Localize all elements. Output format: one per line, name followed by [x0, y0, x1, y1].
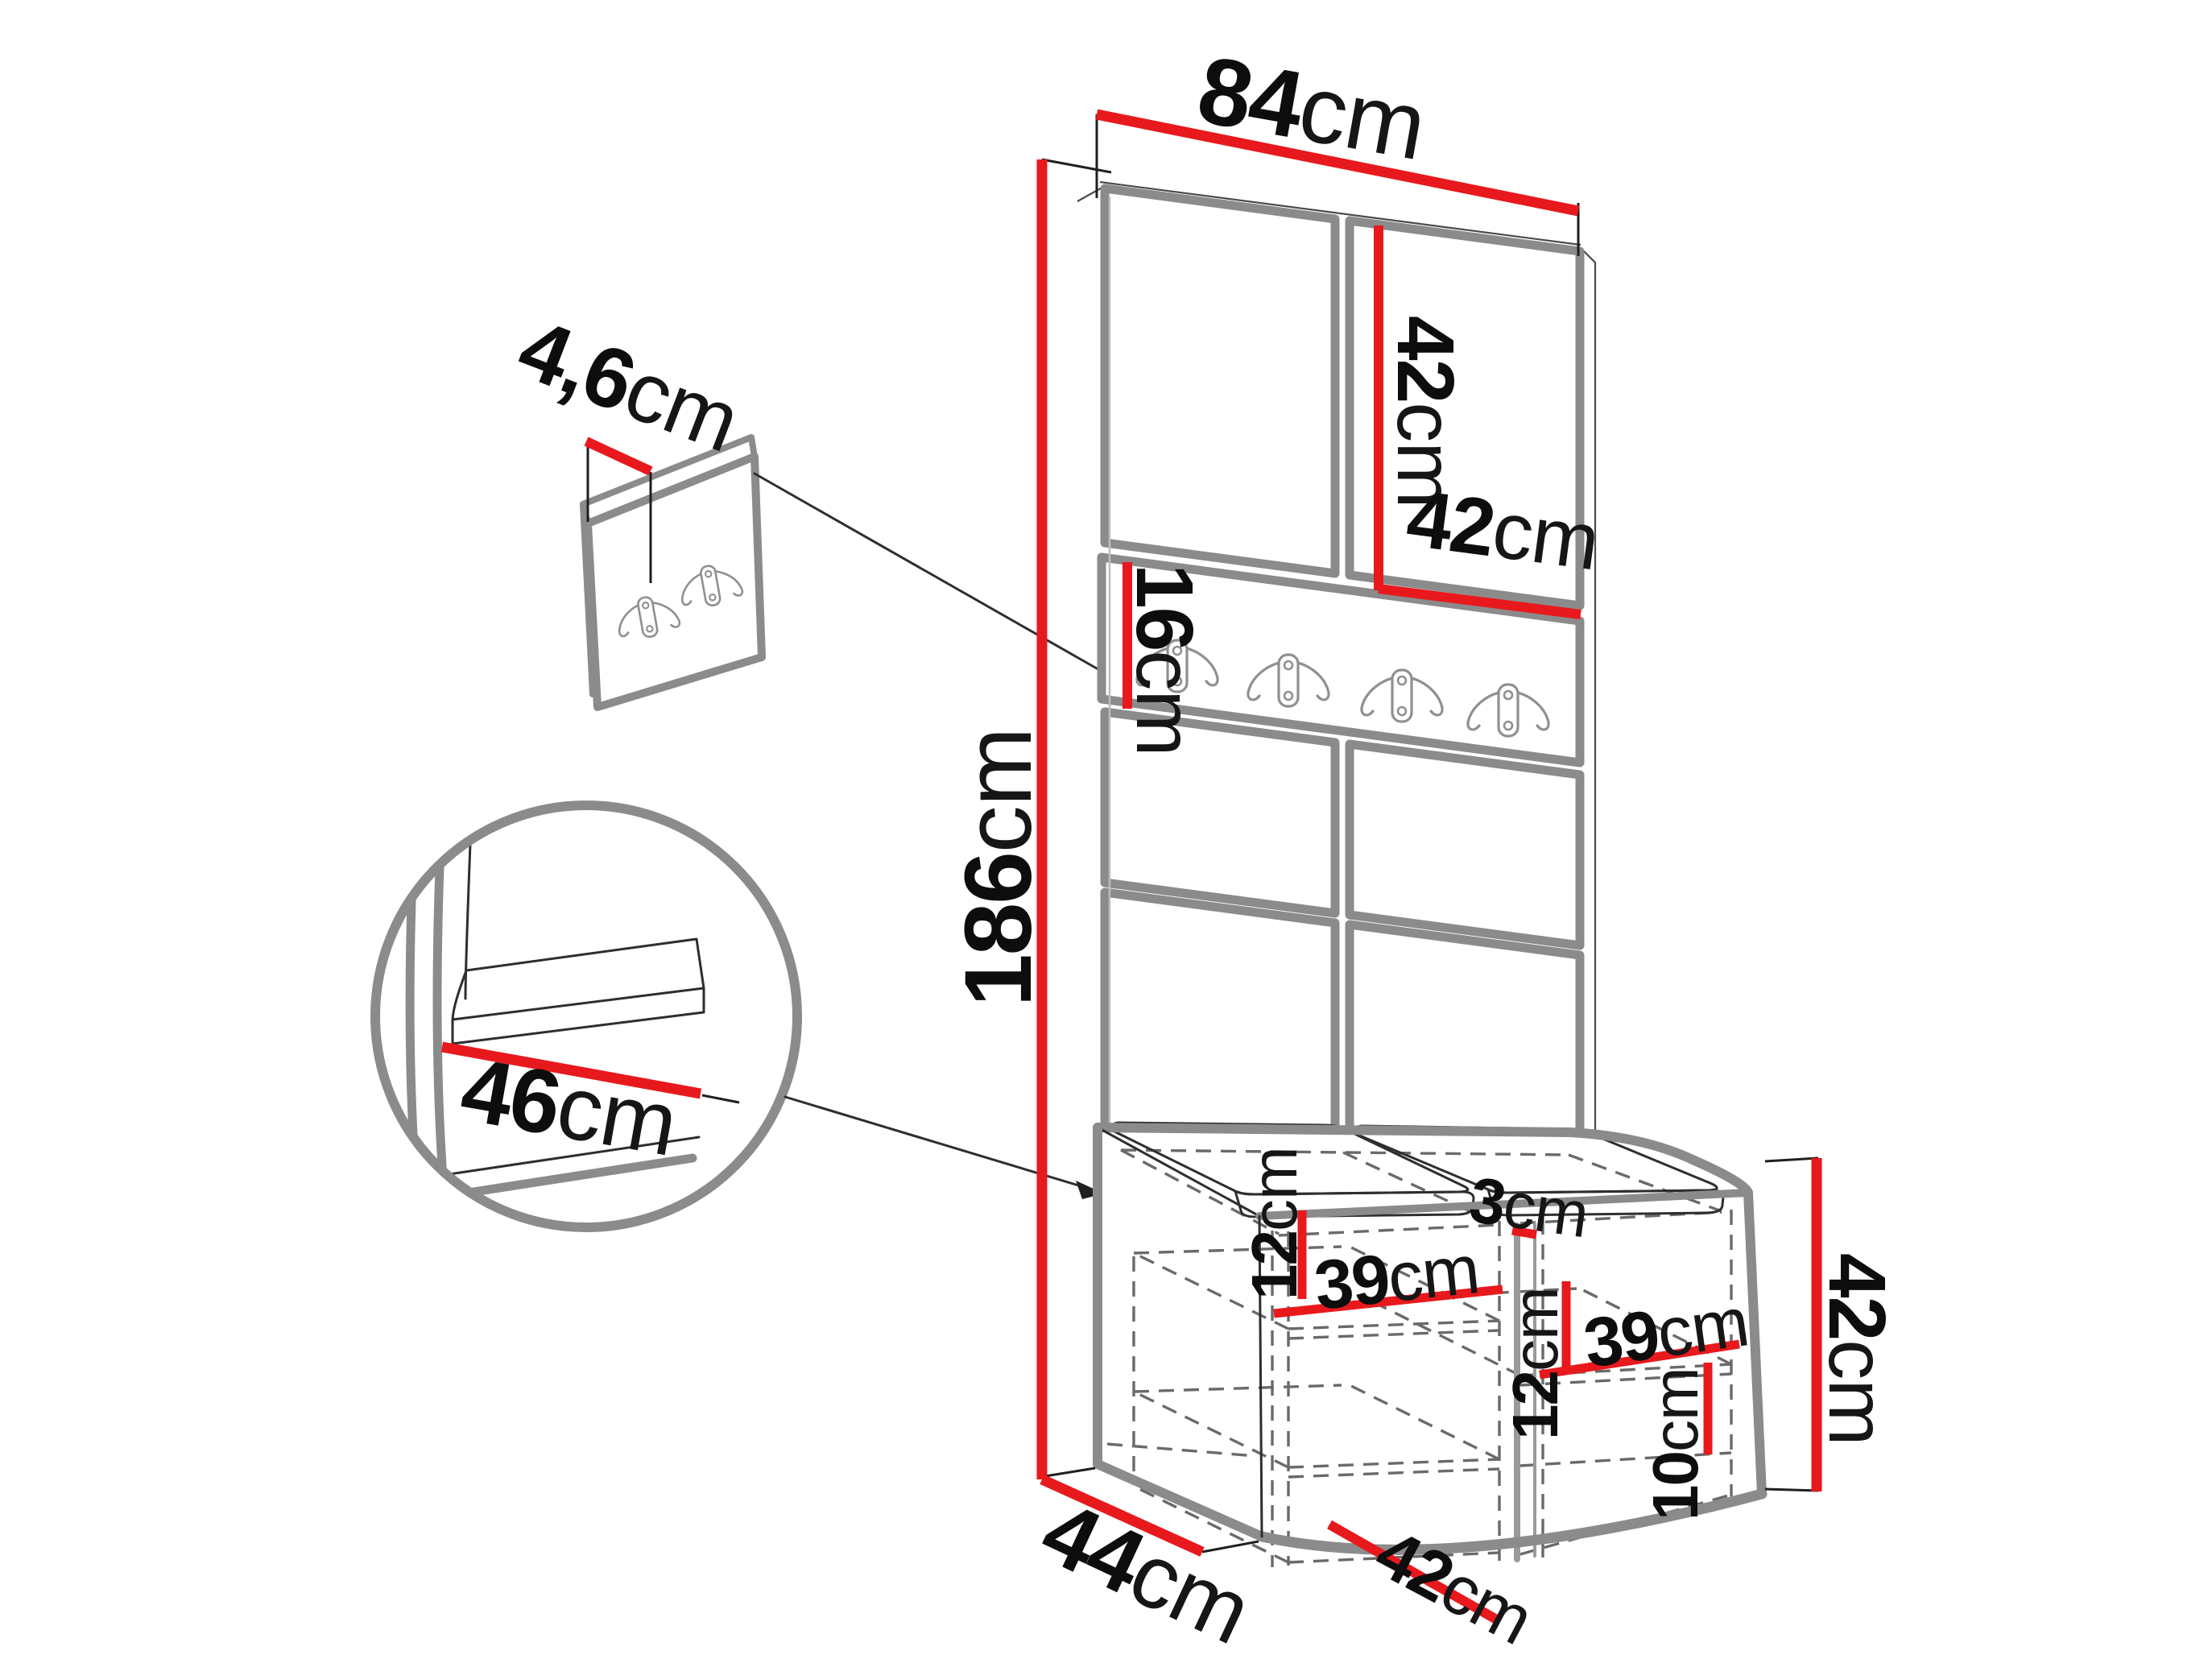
- dim-label-right-shelf-spacing: 12cm: [1499, 1287, 1571, 1440]
- dim-label-bench-height: 42cm: [1812, 1253, 1902, 1446]
- corner-detail-circle: [371, 805, 797, 1227]
- dim-label-bottom-shelf-height: 10cm: [1639, 1367, 1711, 1520]
- upper-panel-left: [1105, 188, 1335, 573]
- furniture-diagram: 84cm 42cm 42cm 16cm 186cm 4,6cm 46cm 44c…: [0, 0, 2212, 1659]
- leader-detail-circle: [785, 1097, 1100, 1192]
- dim-label-left-shelf-spacing: 12cm: [1238, 1147, 1310, 1300]
- dim-line-panel-thickness: [586, 441, 651, 471]
- dim-label-total-height: 186cm: [945, 728, 1052, 1007]
- dim-label-top-width: 84cm: [1190, 36, 1433, 180]
- dim-label-rail-height: 16cm: [1119, 564, 1209, 756]
- detail-panel-edge: [371, 828, 441, 866]
- dim-label-panel-thickness: 4,6cm: [506, 300, 751, 470]
- wall-panel-detail: [583, 437, 762, 707]
- ext-bench-height: [1765, 1158, 1818, 1491]
- diagram-canvas: 84cm 42cm 42cm 16cm 186cm 4,6cm 46cm 44c…: [0, 0, 2212, 1659]
- mid-panel-right: [1350, 744, 1580, 945]
